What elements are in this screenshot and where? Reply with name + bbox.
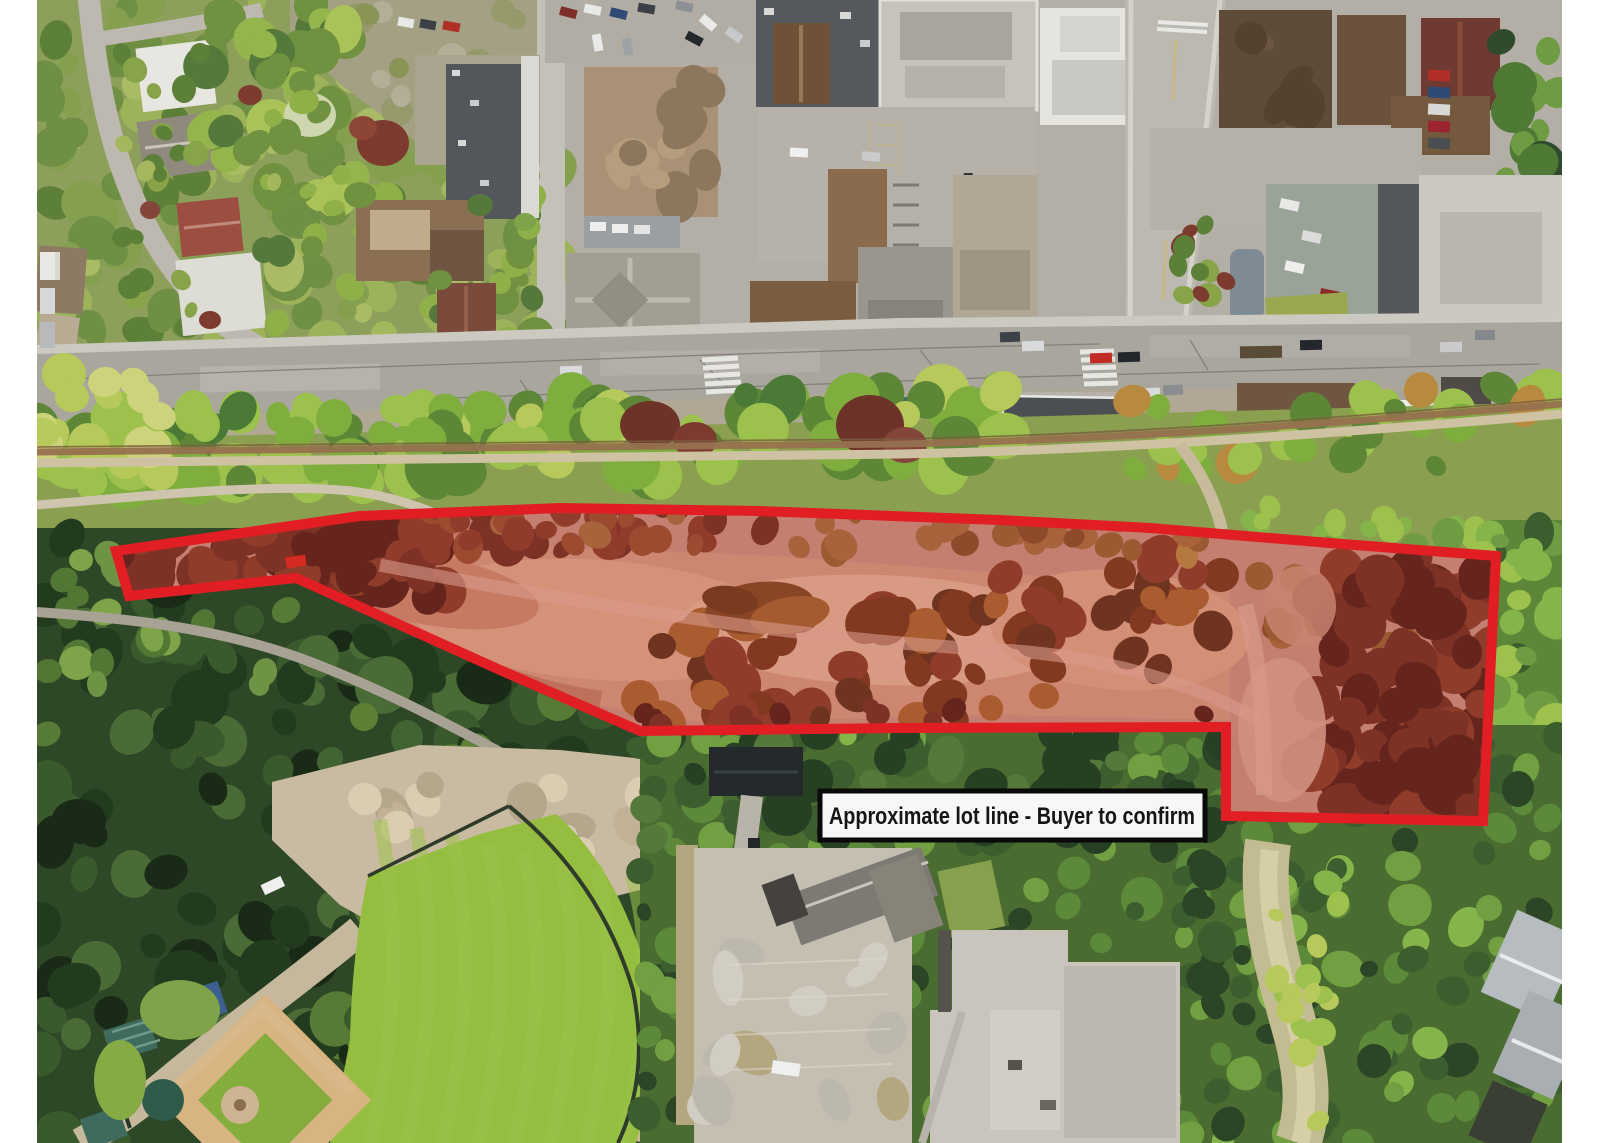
svg-text:Approximate lot line - Buyer t: Approximate lot line - Buyer to confirm (829, 803, 1195, 830)
